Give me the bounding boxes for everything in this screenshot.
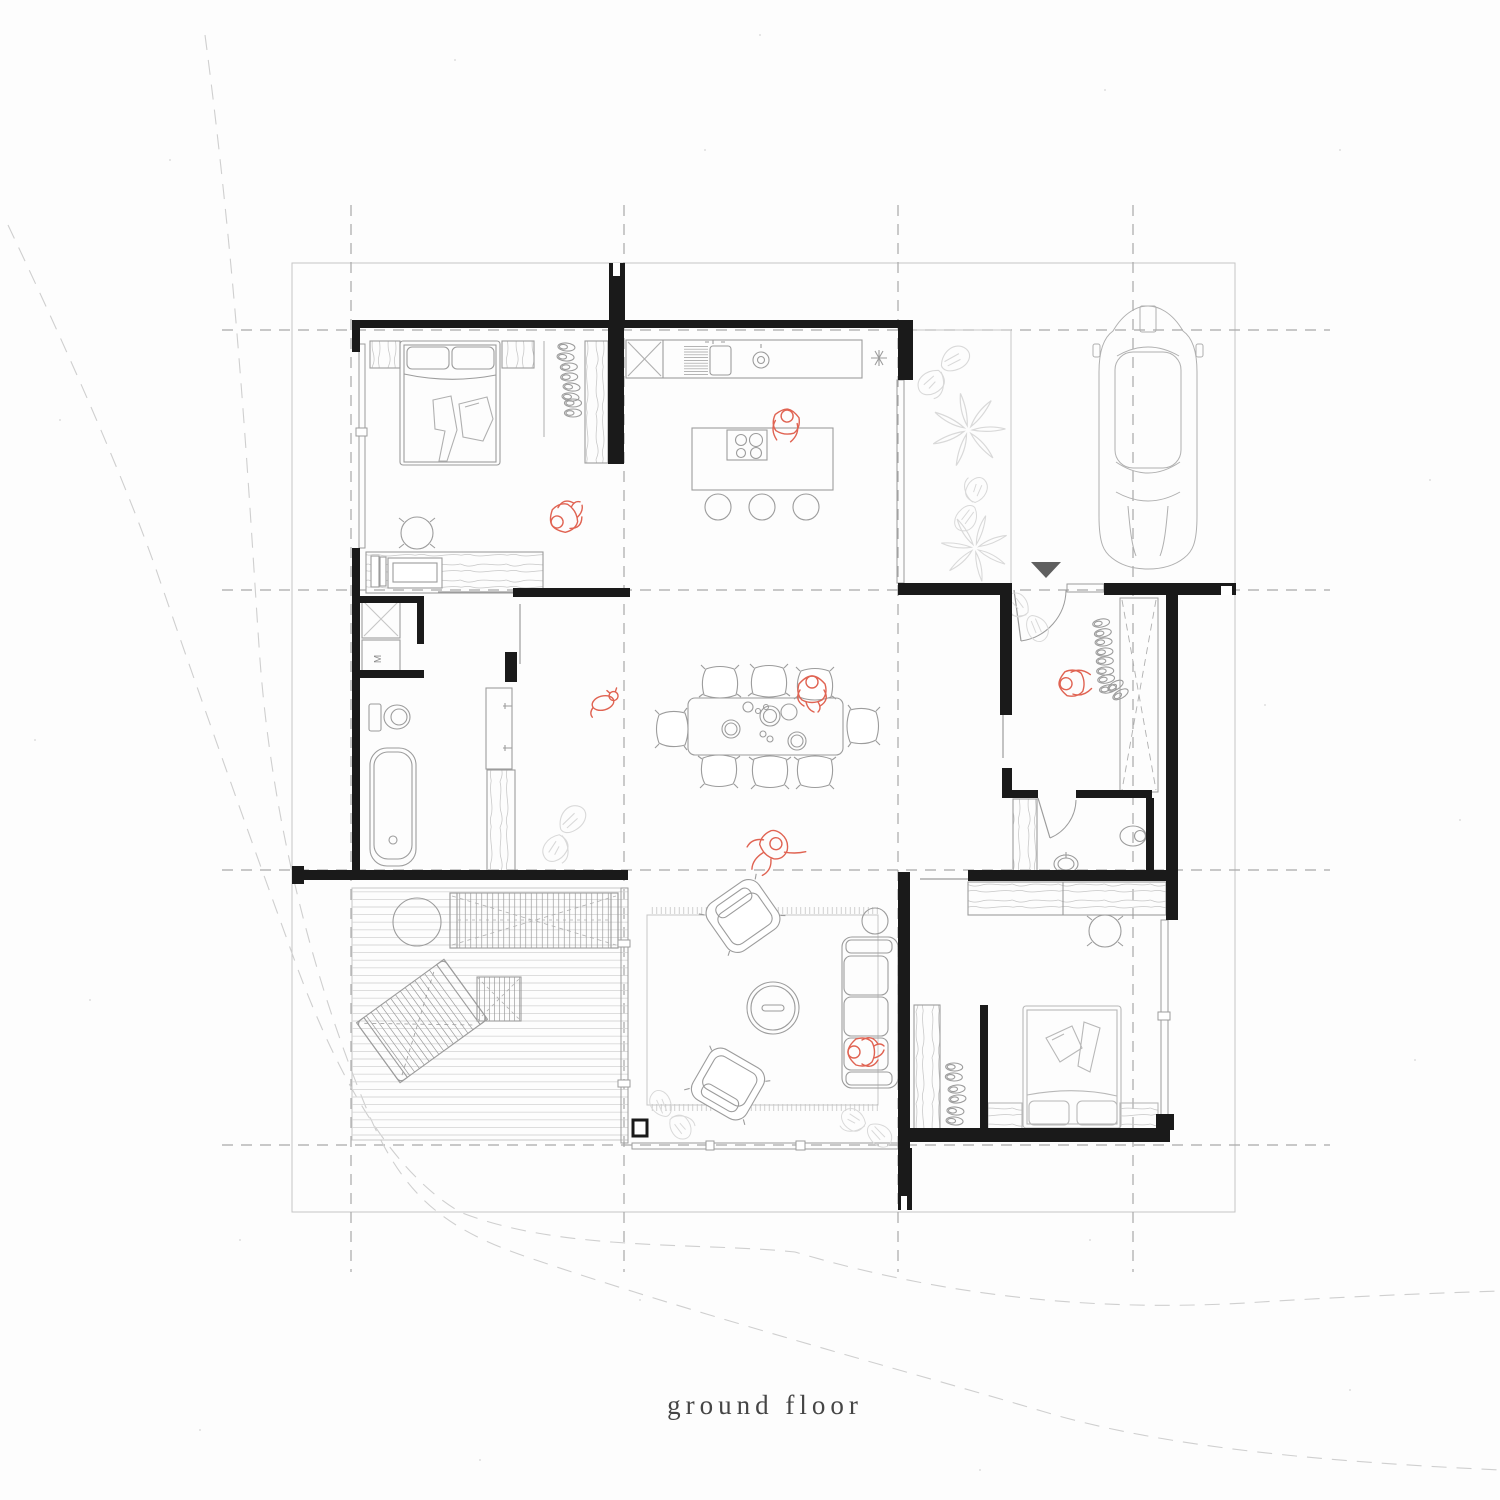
paper-speckle: [1349, 1389, 1351, 1391]
wall-left-stub: [352, 328, 360, 352]
paper-speckle: [1264, 704, 1266, 706]
shoe-pair: [1106, 678, 1130, 702]
vanity-faucet: [503, 745, 512, 751]
shower-cross: [364, 602, 398, 636]
bed2-duvet-fold: [1027, 1091, 1117, 1096]
books: [371, 556, 379, 587]
bathtub-inner: [374, 752, 412, 859]
paper-speckle: [639, 1299, 641, 1301]
vanity-faucet: [503, 703, 512, 709]
wall-terrace-north: [300, 870, 628, 880]
shoe-pair: [557, 342, 576, 361]
sink-faucet: [705, 340, 725, 344]
coffee-table: [747, 982, 799, 1034]
sofa-armrest: [846, 1072, 892, 1085]
glass-handle: [618, 940, 630, 947]
plant-monstera: [834, 1096, 895, 1161]
paper-speckle: [759, 34, 761, 36]
wall-kitchen-ne: [898, 320, 913, 380]
paper-speckle: [239, 1239, 241, 1241]
hob-burner: [751, 448, 762, 459]
hob-burner: [737, 449, 746, 458]
entry-door-swing: [1021, 590, 1066, 641]
plate-inner: [791, 735, 803, 747]
paper-speckle: [59, 419, 61, 421]
figure-person-kitchen: [771, 407, 801, 442]
plant-palm: [932, 393, 1005, 466]
shoe-pair: [560, 363, 578, 382]
desk-chair-bedroom2: [1089, 915, 1121, 947]
column-living-sw: [633, 1120, 647, 1136]
cup: [756, 709, 761, 714]
paper-speckle: [704, 149, 706, 151]
shoe-pair: [565, 399, 582, 417]
sink-basin: [710, 346, 731, 375]
plate-inner: [725, 723, 737, 735]
glass-mullion: [796, 1141, 805, 1150]
car-mirror: [1196, 344, 1203, 357]
wall-south-stub-notch: [901, 1196, 907, 1210]
wall-bath-north: [352, 596, 424, 603]
entry-threshold: [1067, 584, 1104, 592]
bed2-clothes-shirt: [1046, 1026, 1082, 1062]
bed2-frame: [1023, 1006, 1121, 1128]
floor-plan-canvas: M: [0, 0, 1500, 1500]
paper-speckle: [454, 59, 456, 61]
dining-chair: [698, 755, 740, 788]
plant-palm: [931, 503, 1022, 594]
bar-stool: [793, 494, 819, 520]
paper-speckle: [1104, 89, 1106, 91]
car-body: [1099, 306, 1197, 569]
wall-wc-north-left: [1012, 790, 1038, 798]
coffee-table-tray: [762, 1005, 784, 1011]
plant-monstera: [648, 1085, 697, 1143]
nightstand-right: [502, 341, 534, 368]
counter-burner-inner: [758, 357, 765, 364]
entry-arrow: [1031, 562, 1061, 578]
bed1-clothes-shirt: [459, 397, 493, 441]
bed1-blanket-fold: [404, 374, 496, 379]
wall-closet-bedroom2: [980, 1005, 988, 1129]
plant-monstera: [937, 471, 1003, 536]
figure-person-sofa: [848, 1038, 884, 1067]
bar-stool: [705, 494, 731, 520]
counter-burner: [753, 352, 769, 368]
dining-chair: [847, 705, 880, 747]
wc-counter-wood: [1013, 799, 1037, 871]
light-asterisk: [871, 350, 887, 366]
bowl: [781, 704, 797, 720]
wall-entry-notch: [1221, 586, 1232, 595]
wc-sink-inner: [1058, 858, 1074, 870]
hob-burner: [750, 434, 763, 447]
toilet-bowl: [384, 705, 410, 729]
sofa-armrest: [846, 940, 892, 953]
figure-dog: [586, 688, 622, 717]
window-handle: [356, 428, 367, 436]
wall-garden-south: [898, 583, 1012, 595]
deck-bench-end: [450, 893, 457, 948]
bed1-pillow-left: [407, 347, 449, 369]
bowl: [743, 702, 753, 712]
shoe-pair: [946, 1106, 965, 1125]
plant-monstera: [529, 801, 602, 869]
floor-plan-page: M ground floor: [0, 0, 1500, 1500]
paper-speckle: [979, 1469, 981, 1471]
dining-chair: [749, 756, 791, 789]
coffee-table-inner: [751, 986, 795, 1030]
shoe-pair: [1095, 637, 1114, 656]
bar-stool: [749, 494, 775, 520]
bed1-clothes-pants: [433, 396, 457, 461]
desk-chair-bedroom1: [401, 517, 433, 549]
wall-bedroom1-south: [513, 588, 630, 597]
paper-speckle: [1459, 819, 1461, 821]
bed2-pillow: [1029, 1101, 1069, 1125]
bed1-mattress: [404, 345, 496, 462]
wall-flue-notch: [613, 263, 620, 276]
dining-chair: [748, 664, 790, 697]
wc-door-leaf: [1038, 798, 1050, 838]
toilet-bowl-inner: [391, 709, 407, 725]
wall-bedroom2-south: [908, 1128, 1170, 1142]
books: [380, 557, 386, 586]
paper-speckle: [479, 1459, 481, 1461]
wc-sink-faucet: [1063, 852, 1069, 858]
glass-living-south: [632, 1143, 898, 1149]
bed1-frame: [400, 341, 500, 465]
car-roof: [1115, 352, 1181, 468]
wall-bath-inner-h: [352, 670, 424, 678]
car-bonnet: [1116, 492, 1180, 556]
paper-speckle: [169, 159, 171, 161]
wall-bath-inner-v: [417, 596, 424, 644]
glass-mullion: [706, 1141, 714, 1150]
plant-monstera: [910, 343, 978, 401]
hob-burner: [736, 435, 747, 446]
window-bedroom1: [359, 344, 365, 548]
dining-chair: [699, 665, 741, 698]
shoe-pair: [1096, 657, 1114, 676]
bed2-pillow: [1077, 1101, 1117, 1125]
plate-inner: [764, 710, 777, 723]
plan-title: ground floor: [615, 1390, 915, 1421]
shoe-pair: [1092, 618, 1112, 639]
paper-speckle: [1429, 479, 1431, 481]
kitchen-counter: [626, 340, 862, 378]
paper-speckle: [1339, 149, 1341, 151]
entry-closet-x: [1122, 600, 1156, 790]
car-mirror: [1093, 344, 1100, 357]
paper-speckle: [89, 999, 91, 1001]
figure-person-entry: [1058, 669, 1092, 698]
paper-speckle: [1414, 1059, 1416, 1061]
washing-machine-label: M: [373, 655, 384, 663]
wall-bedroom1-divider: [608, 328, 624, 464]
wardrobe-bedroom1: [585, 341, 608, 463]
paper-speckle: [34, 739, 36, 741]
deck-bench-end: [611, 893, 618, 948]
bath-cabinet-wood: [487, 770, 515, 873]
wall-wc-east: [1146, 798, 1154, 872]
bed1-pillow-right: [452, 347, 494, 369]
desk-bedroom2: [968, 882, 1166, 915]
wall-vanity-cap: [505, 652, 517, 682]
wall-hall-west-b: [1002, 768, 1012, 798]
nightstand-left: [370, 341, 400, 368]
paper-speckle: [1089, 1239, 1091, 1241]
sofa: [842, 937, 898, 1088]
toilet-tank: [369, 704, 381, 731]
kitchen-cabinet-x: [628, 342, 661, 376]
glass-handle: [618, 1080, 630, 1087]
side-table: [862, 908, 888, 934]
figure-person-walking: [738, 821, 806, 889]
car-sunroof-strip: [1140, 306, 1156, 332]
shoe-pair: [945, 1063, 963, 1082]
sofa-cushion: [844, 956, 888, 995]
window-handle: [1158, 1012, 1170, 1020]
dining-chair: [794, 756, 836, 789]
wall-bedroom2-north: [968, 870, 1168, 881]
shoe-pair: [948, 1084, 967, 1103]
wall-wc-north-right: [1076, 790, 1152, 798]
vanity-counter: [486, 688, 512, 769]
deck-bench: [450, 893, 618, 948]
paper-speckle: [199, 1429, 201, 1431]
bathtub: [370, 748, 416, 866]
cup: [760, 731, 766, 737]
wall-se-joint: [1156, 1114, 1174, 1130]
wc-toilet-inner: [1135, 831, 1146, 842]
bathtub-drain: [389, 836, 397, 844]
bed2-platform: [1120, 1103, 1158, 1129]
wall-living-east: [898, 872, 910, 1148]
wall-top: [352, 320, 913, 328]
wall-hall-west-a: [1000, 595, 1012, 715]
wc-door-swing: [1050, 800, 1076, 838]
armchair: [698, 872, 789, 960]
wardrobe-bedroom2: [914, 1005, 940, 1129]
wall-entry-north: [1104, 583, 1236, 595]
figure-person-bedroom1: [545, 495, 590, 538]
armchair: [683, 1041, 773, 1126]
cup: [767, 736, 773, 742]
dining-chair: [655, 708, 688, 750]
bed2-platform: [988, 1103, 1022, 1129]
sofa-cushion: [844, 997, 888, 1036]
